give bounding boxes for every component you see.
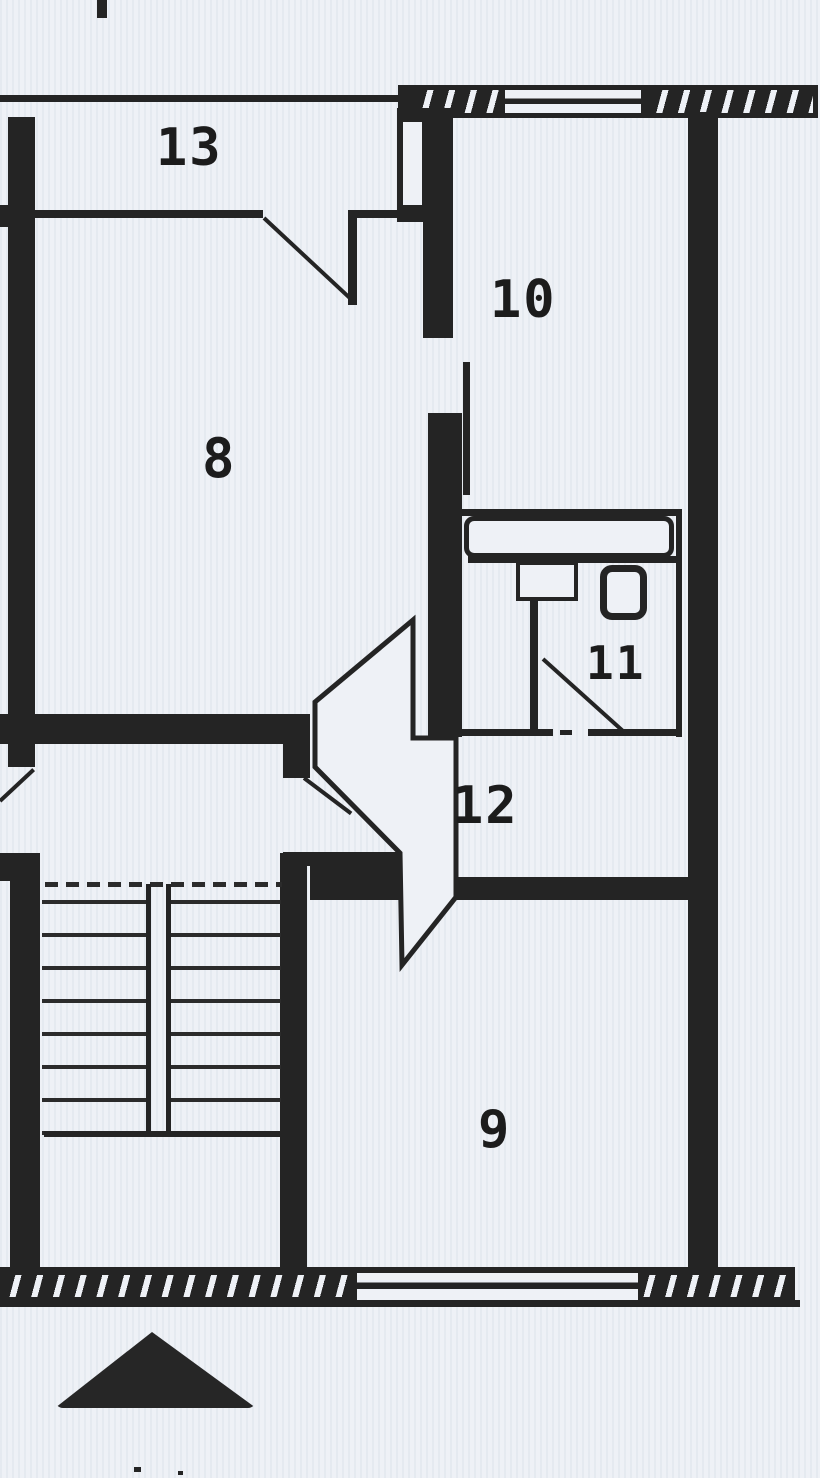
- sink: [516, 561, 578, 601]
- room-label-11: 11: [586, 640, 645, 686]
- room-label-9: 9: [478, 1104, 511, 1156]
- bathroom-bottom-line: [460, 729, 553, 736]
- staircase-flight-left: [42, 900, 148, 1137]
- masonry-hatch: [6, 1275, 351, 1297]
- bathtub: [464, 516, 674, 558]
- wall-room10-left: [423, 220, 453, 338]
- wall-room8-right: [428, 413, 462, 737]
- staircase-flight-right: [168, 900, 281, 1137]
- masonry-hatch: [640, 1275, 790, 1297]
- balcony-door-jamb: [348, 210, 357, 305]
- stair-stringer: [146, 884, 151, 1137]
- wall-balcony-bottom: [33, 210, 263, 218]
- bathroom-bottom-line: [588, 729, 678, 736]
- bathroom-right-line: [676, 509, 682, 737]
- wall-top-thin: [0, 95, 400, 102]
- scan-artifact-tick: [97, 0, 107, 18]
- balcony-door-leaf: [263, 217, 353, 302]
- wall-bottom-exterior: [0, 1267, 795, 1307]
- bathroom-bottom-dash: [560, 730, 572, 735]
- floor-plan-scan: 13 10 8 11 12 9: [0, 0, 820, 1478]
- scan-artifact-speck: [178, 1471, 183, 1475]
- wall-balcony-bottom-cont: [353, 210, 399, 218]
- bathroom-partition: [530, 598, 538, 731]
- room10-door-leaf: [463, 362, 470, 495]
- stair-wall-right: [280, 853, 307, 1267]
- room-label-12: 12: [452, 780, 519, 832]
- wall-corner-stub: [283, 744, 310, 778]
- room-label-13: 13: [156, 122, 223, 174]
- corridor-door-leaf: [303, 776, 353, 815]
- stair-stringer: [166, 884, 171, 1137]
- room-label-10: 10: [490, 274, 557, 326]
- wall-top-exterior: [398, 85, 818, 118]
- wall-room8-bottom: [0, 714, 310, 744]
- wall-room9-top-left: [310, 866, 403, 900]
- window-top: [505, 90, 641, 113]
- toilet: [600, 565, 647, 620]
- stair-first-tread: [45, 882, 282, 887]
- wall-room9-top-right: [456, 877, 688, 900]
- wall-bottom-edge-ext: [770, 1300, 800, 1307]
- entrance-door-leaf: [0, 768, 35, 802]
- scan-artifact-speck: [134, 1467, 141, 1472]
- room-label-8: 8: [202, 432, 237, 486]
- glazing-slit: [403, 122, 422, 205]
- scan-artifact-stub: [0, 205, 8, 227]
- masonry-hatch: [653, 90, 813, 113]
- stair-landing-line: [44, 1131, 283, 1137]
- stair-wall-left: [10, 853, 40, 1267]
- bathroom-top-line: [453, 509, 678, 516]
- window-bottom: [357, 1273, 638, 1300]
- wall-right-exterior: [688, 112, 718, 1280]
- wall-left-exterior: [8, 117, 35, 767]
- triangle-marker: [55, 1332, 256, 1408]
